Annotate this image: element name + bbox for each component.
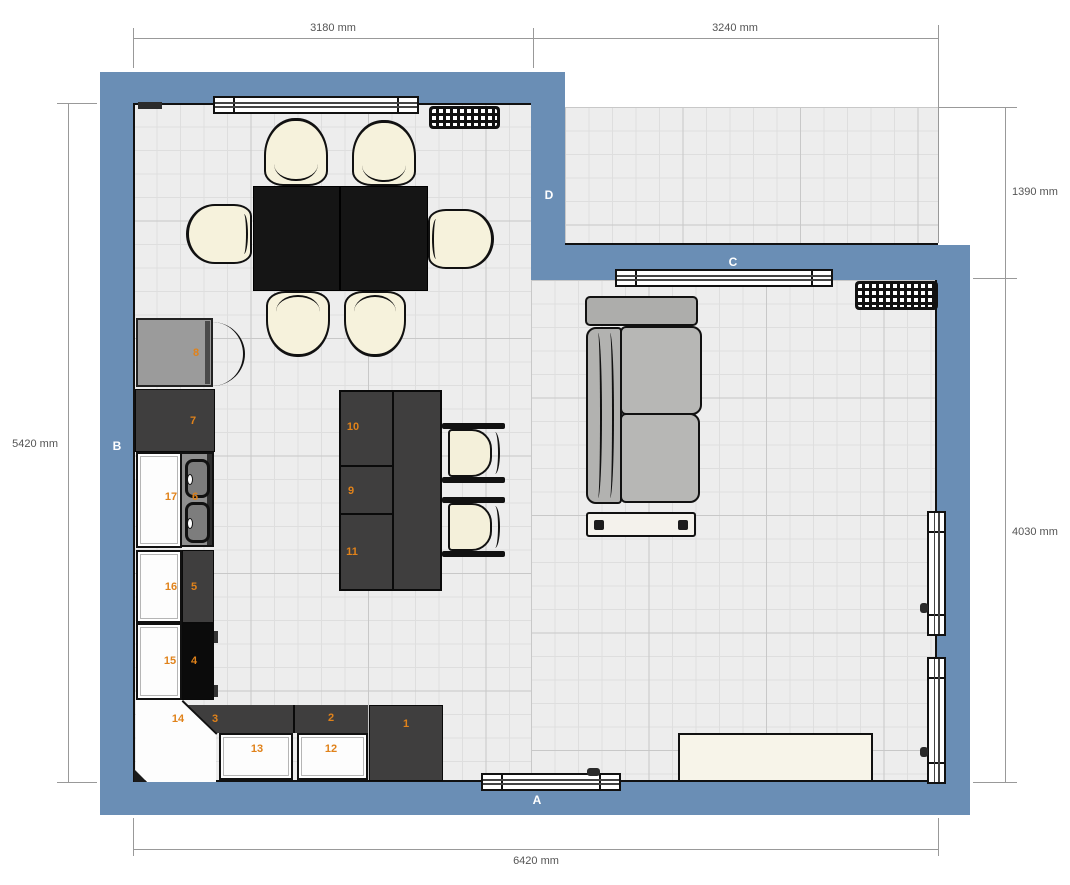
window-rail <box>215 102 417 104</box>
unit-number-3: 3 <box>212 713 218 725</box>
dining-table-right-half[interactable] <box>340 186 428 291</box>
window-rail <box>215 106 417 108</box>
dimension-tick <box>533 28 534 68</box>
dimension-line-left <box>68 103 69 783</box>
wall-label-a: A <box>533 793 542 807</box>
dimension-tick <box>938 818 939 856</box>
sofa-backrest <box>586 327 622 504</box>
unit-number-1: 1 <box>403 718 409 730</box>
sideboard[interactable] <box>678 733 873 782</box>
wall-d[interactable] <box>531 103 565 245</box>
window-mullion <box>599 775 601 789</box>
stool-frame-bar <box>442 551 505 557</box>
window-mullion <box>635 271 637 285</box>
dimension-label-right-upper: 1390 mm <box>1012 186 1058 198</box>
window-right-lower[interactable] <box>927 657 946 784</box>
dimension-tick <box>133 818 134 856</box>
window-handle <box>920 603 928 613</box>
sink-drain-icon <box>187 474 193 485</box>
counter-divider <box>293 705 295 733</box>
unit-number-13: 13 <box>251 743 263 755</box>
sink-bowl-bottom <box>185 502 210 543</box>
island-divider <box>341 513 392 515</box>
window-rail <box>938 659 940 782</box>
cabinet-unit-7[interactable] <box>135 389 215 452</box>
sofa-seat-cushion-1 <box>620 326 702 415</box>
unit-number-4: 4 <box>191 655 197 667</box>
dimension-tick <box>133 28 134 68</box>
dimension-line-top <box>133 38 938 39</box>
radiator-fins <box>432 109 497 126</box>
radiator-right[interactable] <box>855 281 938 310</box>
unit-number-8: 8 <box>193 347 199 359</box>
dimension-tick <box>938 25 939 107</box>
unit-number-7: 7 <box>190 415 196 427</box>
sofa-foot <box>594 520 604 530</box>
unit-number-11: 11 <box>346 546 358 558</box>
window-mullion <box>233 98 235 112</box>
window-wall-c[interactable] <box>615 269 833 287</box>
island-divider <box>392 392 394 589</box>
bar-stool-1[interactable] <box>442 423 505 483</box>
unit-number-10: 10 <box>347 421 359 433</box>
window-top[interactable] <box>213 96 419 114</box>
window-mullion <box>501 775 503 789</box>
wall-label-d: D <box>545 188 554 202</box>
unit-number-14: 14 <box>172 713 184 725</box>
sofa[interactable] <box>583 293 706 540</box>
island-divider <box>341 465 392 467</box>
dining-chair-north-2[interactable] <box>352 120 416 186</box>
radiator-top[interactable] <box>429 106 500 129</box>
sofa-cushion-line <box>606 333 614 498</box>
dining-chair-west[interactable] <box>186 204 252 264</box>
window-rail <box>934 659 936 782</box>
sink-drain-icon <box>187 518 193 529</box>
window-mullion <box>811 271 813 285</box>
radiator-fins <box>858 284 935 307</box>
dimension-tick <box>973 782 1017 783</box>
window-rail <box>938 513 940 634</box>
unit-number-17: 17 <box>165 491 177 503</box>
dining-chair-north-1[interactable] <box>264 118 328 186</box>
dining-chair-east[interactable] <box>428 209 494 269</box>
sofa-seat-cushion-2 <box>620 413 700 503</box>
window-rail <box>934 513 936 634</box>
wall-shelf-strip[interactable] <box>138 102 162 109</box>
unit-number-15: 15 <box>164 655 176 667</box>
window-right-upper[interactable] <box>927 511 946 636</box>
floor-plan-canvas: A B C D 3180 mm 3240 mm 5420 mm 1390 mm … <box>0 0 1070 885</box>
sofa-armrest <box>585 296 698 326</box>
unit-number-2: 2 <box>328 712 334 724</box>
window-rail <box>617 279 831 281</box>
adjacent-floor <box>565 107 938 243</box>
dimension-tick <box>973 278 1017 279</box>
fridge[interactable] <box>136 318 213 387</box>
wall-label-c: C <box>729 255 738 269</box>
dimension-label-top-left: 3180 mm <box>283 22 383 34</box>
window-rail <box>483 783 619 785</box>
dimension-tick <box>57 782 97 783</box>
cabinet-unit-13[interactable] <box>219 733 293 780</box>
unit-number-12: 12 <box>325 743 337 755</box>
unit-number-6: 6 <box>192 491 198 503</box>
dimension-line-bottom <box>133 849 939 850</box>
cabinet-unit-1[interactable] <box>369 705 443 781</box>
window-mullion <box>397 98 399 112</box>
stool-seat <box>448 429 492 477</box>
dimension-tick <box>57 103 97 104</box>
stool-seat <box>448 503 492 551</box>
sofa-cushion-line <box>594 333 602 498</box>
unit-number-9: 9 <box>348 485 354 497</box>
window-mullion <box>929 531 944 533</box>
door-handle <box>587 768 600 776</box>
dimension-label-right-lower: 4030 mm <box>1012 526 1058 538</box>
dining-table-left-half[interactable] <box>253 186 340 291</box>
window-mullion <box>929 762 944 764</box>
adjacent-floor-edge <box>938 107 939 243</box>
sofa-foot <box>678 520 688 530</box>
dimension-tick <box>938 107 1017 108</box>
dimension-label-bottom: 6420 mm <box>486 855 586 867</box>
dimension-label-left: 5420 mm <box>0 438 58 450</box>
oven-handle <box>214 685 218 697</box>
stool-frame-bar <box>442 477 505 483</box>
window-mullion <box>929 677 944 679</box>
dimension-label-top-right: 3240 mm <box>685 22 785 34</box>
cabinet-unit-12[interactable] <box>297 733 368 780</box>
sofa-base <box>586 512 696 537</box>
stool-seat-curve <box>490 432 500 474</box>
dimension-line-right <box>1005 107 1006 783</box>
window-handle <box>920 747 928 757</box>
oven-unit-4[interactable] <box>182 623 214 700</box>
unit-number-16: 16 <box>165 581 177 593</box>
window-rail <box>483 779 619 781</box>
bar-stool-2[interactable] <box>442 497 505 557</box>
fridge-door-edge <box>205 321 210 384</box>
oven-handle <box>214 631 218 643</box>
wall-label-b: B <box>113 439 122 453</box>
stool-seat-curve <box>490 506 500 548</box>
unit-number-5: 5 <box>191 581 197 593</box>
window-mullion <box>929 614 944 616</box>
cabinet-unit-5[interactable] <box>182 550 214 623</box>
window-rail <box>617 275 831 277</box>
door-wall-a[interactable] <box>481 773 621 791</box>
